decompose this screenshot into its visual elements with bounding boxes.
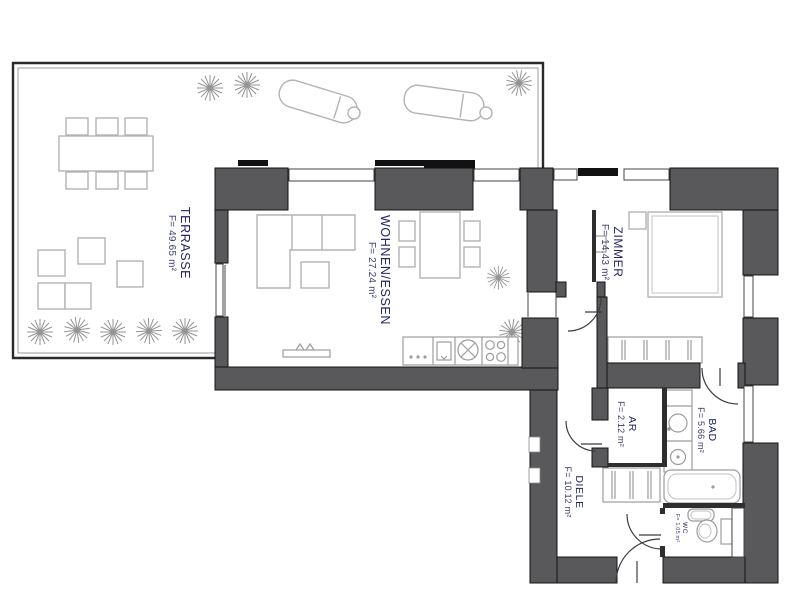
lintel-bar	[375, 160, 425, 166]
wall-segment	[738, 363, 745, 388]
wall-segment	[556, 282, 566, 297]
sun-lounger	[276, 77, 360, 126]
terrace-chair	[125, 118, 147, 135]
lintel-bar	[238, 160, 268, 166]
bed	[648, 212, 722, 297]
room-label-diele: DIELE	[573, 475, 585, 508]
storage-door	[566, 421, 602, 451]
room-area-terrasse: F= 49.65 m²	[166, 215, 177, 272]
room-area-ar: F= 2.12 m²	[616, 401, 626, 447]
wall-segment	[743, 318, 778, 385]
terrace-dining-set	[59, 118, 153, 189]
terrace-chair	[66, 172, 88, 189]
planter	[38, 250, 65, 276]
dining-chair	[399, 247, 415, 267]
window	[624, 169, 669, 180]
terrace-chair	[125, 172, 147, 189]
window	[474, 169, 519, 181]
dining-chair	[464, 221, 480, 241]
wall-segment	[215, 168, 288, 210]
bathroom-door	[702, 368, 738, 404]
window	[289, 169, 374, 181]
hallway-wardrobe	[603, 468, 660, 502]
side-table	[480, 107, 492, 119]
bathtub	[664, 470, 740, 503]
wall-segment	[375, 168, 473, 210]
room-area-diele: F= 10.12 m²	[563, 467, 573, 518]
room-label-terrasse: TERRASSE	[178, 207, 192, 279]
thin-wall	[662, 388, 667, 467]
room-label-wc: WC	[681, 522, 688, 534]
wall-notch	[529, 437, 540, 452]
wall-segment	[530, 390, 557, 583]
wardrobe	[608, 337, 702, 363]
terrace-door	[216, 264, 223, 316]
wall-segment	[215, 317, 228, 368]
dining-chair	[399, 221, 415, 241]
wall-segment	[215, 210, 228, 263]
wall-segment	[670, 168, 778, 210]
room-label-zimmer: ZIMMER	[611, 227, 625, 278]
thin-wall	[660, 546, 665, 557]
wall-segment	[663, 557, 745, 583]
floor-plan-page: TERRASSE F= 49.65 m² WOHNEN/ESSEN F= 27.…	[0, 0, 800, 600]
toilet	[697, 519, 732, 544]
wall-segment	[520, 168, 553, 210]
room-area-wohnen-essen: F= 27.24 m²	[366, 242, 377, 299]
sun-lounger	[402, 84, 485, 123]
corner-sofa	[257, 215, 355, 288]
planter	[65, 283, 91, 309]
duct-shaft	[732, 508, 744, 557]
nightstand	[629, 212, 646, 229]
wall-segment	[592, 388, 608, 420]
window	[744, 276, 753, 317]
terrace-table	[59, 136, 153, 171]
wall-segment	[215, 367, 558, 390]
wall-segment	[743, 210, 778, 275]
entrance-door	[616, 539, 660, 583]
planter	[38, 283, 65, 309]
wc-door	[627, 514, 662, 549]
window	[554, 169, 577, 180]
dining-table	[420, 212, 460, 278]
kitchen-counter	[403, 337, 518, 365]
wall-segment	[522, 318, 558, 368]
bath-counter	[664, 390, 692, 472]
wall-segment	[743, 443, 778, 583]
window	[744, 386, 753, 442]
wall-notch	[529, 468, 540, 483]
thin-wall	[663, 503, 745, 508]
terrace-chair	[66, 118, 88, 135]
room-label-ar: AR	[626, 416, 638, 432]
room-label-wohnen-essen: WOHNEN/ESSEN	[378, 215, 392, 325]
wall-segment	[527, 210, 557, 292]
terrace-chair	[96, 172, 118, 189]
room-area-bad: F= 5.66 m²	[696, 407, 706, 453]
thin-wall	[592, 210, 596, 282]
dining-chair	[464, 247, 480, 267]
room-label-bad: BAD	[706, 418, 718, 441]
wall-segment	[557, 557, 617, 583]
terrace-chair	[96, 118, 118, 135]
planter	[117, 261, 143, 287]
wall-segment	[605, 363, 700, 388]
terrace-planters	[38, 238, 143, 309]
lintel-bar	[578, 168, 618, 176]
thin-wall	[660, 508, 665, 514]
room-area-wc: F= 1.05 m²	[674, 514, 680, 543]
tv-sideboard	[283, 350, 330, 357]
coffee-table	[301, 262, 329, 288]
floor-plan-drawing: TERRASSE F= 49.65 m² WOHNEN/ESSEN F= 27.…	[0, 0, 800, 600]
side-table	[348, 107, 360, 119]
thin-wall	[608, 463, 662, 467]
room-area-zimmer: F= 14.43 m²	[599, 224, 610, 281]
planter	[78, 238, 105, 264]
wall-segment	[597, 282, 605, 297]
